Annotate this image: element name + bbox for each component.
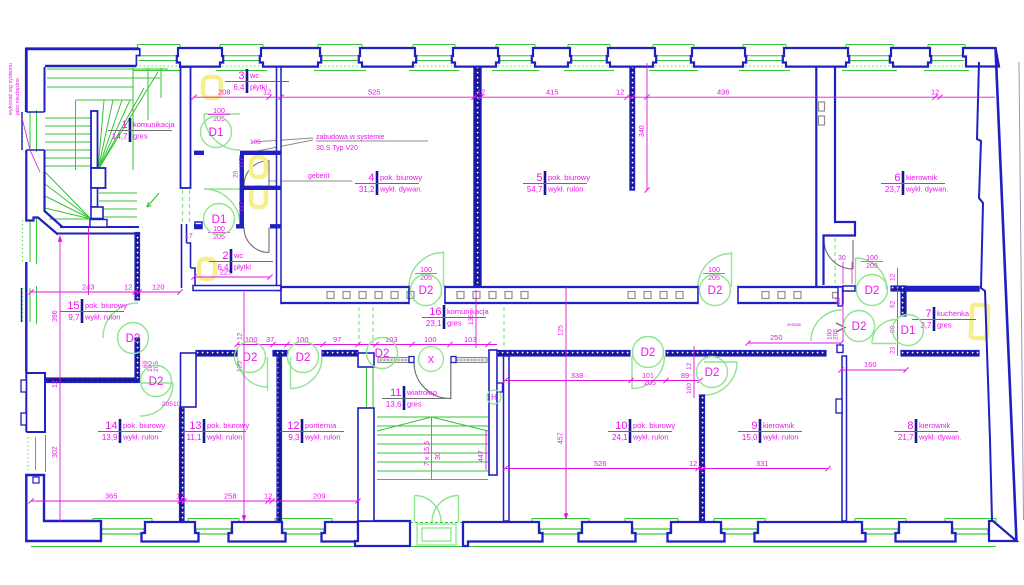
svg-text:portiernia: portiernia: [305, 421, 337, 430]
svg-text:wc: wc: [249, 71, 259, 80]
svg-text:geberit: geberit: [308, 173, 329, 180]
svg-text:12: 12: [52, 380, 59, 388]
svg-text:54,7: 54,7: [527, 185, 543, 194]
svg-text:gres: gres: [937, 321, 952, 330]
svg-text:30: 30: [435, 452, 442, 460]
svg-text:16: 16: [429, 306, 441, 318]
svg-text:396: 396: [52, 310, 59, 322]
svg-text:100: 100: [424, 335, 437, 344]
svg-text:12: 12: [176, 492, 184, 501]
svg-text:11: 11: [390, 387, 401, 399]
svg-text:pok. biurowy: pok. biurowy: [548, 173, 590, 182]
svg-text:gres: gres: [133, 132, 148, 141]
svg-text:kierownik: kierownik: [919, 421, 951, 430]
svg-text:302: 302: [52, 446, 59, 458]
svg-text:D2: D2: [126, 333, 141, 345]
svg-text:D2: D2: [705, 367, 720, 379]
svg-text:13: 13: [835, 297, 842, 305]
svg-text:wykł. rulon: wykł. rulon: [632, 433, 668, 442]
svg-text:pok. biurowy: pok. biurowy: [633, 421, 675, 430]
svg-text:31,2: 31,2: [359, 185, 375, 194]
svg-text:205: 205: [644, 380, 656, 387]
svg-text:gres: gres: [447, 319, 462, 328]
svg-text:20: 20: [233, 170, 240, 178]
svg-text:wykł. rulon: wykł. rulon: [304, 433, 340, 442]
svg-text:D1: D1: [901, 325, 916, 337]
svg-text:D2: D2: [149, 376, 164, 388]
svg-text:103: 103: [385, 335, 398, 344]
svg-text:125: 125: [558, 325, 565, 336]
svg-text:pok. biurowy: pok. biurowy: [123, 421, 165, 430]
svg-text:13,6: 13,6: [386, 400, 402, 409]
svg-text:23,1: 23,1: [426, 319, 442, 328]
svg-text:7: 7: [925, 308, 931, 320]
svg-text:5: 5: [536, 172, 542, 184]
svg-text:pok. biurowy: pok. biurowy: [207, 421, 249, 430]
svg-text:103: 103: [464, 335, 477, 344]
svg-text:12: 12: [264, 492, 272, 501]
svg-text:12: 12: [124, 283, 132, 292]
svg-text:9: 9: [751, 420, 757, 432]
svg-text:7 x 15,5: 7 x 15,5: [424, 441, 431, 466]
svg-text:wc: wc: [233, 251, 243, 260]
svg-text:205: 205: [162, 401, 173, 408]
svg-text:D2: D2: [641, 347, 656, 359]
svg-text:30: 30: [838, 255, 846, 262]
svg-text:526: 526: [594, 459, 607, 468]
svg-text:17: 17: [185, 233, 193, 240]
svg-text:15,0: 15,0: [742, 433, 758, 442]
svg-text:D2: D2: [296, 352, 311, 364]
svg-text:100: 100: [213, 226, 225, 233]
svg-text:12: 12: [931, 88, 939, 97]
svg-text:205: 205: [420, 275, 432, 282]
svg-text:30.S Typ V20: 30.S Typ V20: [316, 145, 358, 152]
svg-text:zestaw: zestaw: [787, 322, 802, 327]
svg-text:23: 23: [890, 346, 897, 354]
svg-text:10: 10: [173, 401, 181, 408]
svg-text:12: 12: [686, 362, 693, 370]
svg-text:365: 365: [105, 492, 118, 501]
svg-text:10: 10: [615, 420, 627, 432]
svg-text:23,7: 23,7: [885, 185, 901, 194]
svg-text:wykł. dywan.: wykł. dywan.: [905, 185, 949, 194]
svg-text:D2: D2: [708, 285, 723, 297]
svg-text:415: 415: [546, 88, 559, 97]
svg-text:100: 100: [708, 267, 720, 274]
svg-text:331: 331: [756, 459, 769, 468]
svg-text:209: 209: [313, 492, 326, 501]
svg-text:457: 457: [558, 432, 565, 444]
svg-text:6,4: 6,4: [233, 83, 245, 92]
svg-text:płytki: płytki: [234, 263, 251, 272]
svg-text:D2: D2: [419, 285, 434, 297]
svg-text:15: 15: [67, 300, 79, 312]
svg-text:89: 89: [681, 371, 689, 380]
svg-text:wykł. rulon: wykł. rulon: [122, 433, 158, 442]
svg-text:D1: D1: [209, 127, 224, 139]
svg-text:D1: D1: [212, 214, 227, 226]
svg-text:wiatrołap: wiatrołap: [406, 388, 437, 397]
svg-text:8: 8: [907, 420, 913, 432]
svg-text:100: 100: [213, 108, 225, 115]
svg-text:21,7: 21,7: [898, 433, 914, 442]
svg-text:12: 12: [237, 332, 244, 340]
svg-text:13: 13: [189, 420, 201, 432]
svg-text:101: 101: [642, 373, 654, 380]
svg-text:120: 120: [152, 283, 165, 292]
svg-text:258: 258: [224, 492, 237, 501]
svg-text:wykł. rulon: wykł. rulon: [84, 313, 120, 322]
svg-text:płytki: płytki: [250, 83, 267, 92]
svg-text:12: 12: [616, 88, 624, 97]
svg-text:2: 2: [222, 250, 228, 262]
svg-text:D2: D2: [375, 348, 390, 360]
svg-text:gres: gres: [407, 400, 422, 409]
svg-text:6,4: 6,4: [217, 263, 229, 272]
svg-text:525: 525: [368, 88, 381, 97]
svg-text:3: 3: [238, 70, 244, 82]
svg-text:62: 62: [890, 300, 897, 308]
svg-text:zabudowa w systemie: zabudowa w systemie: [316, 134, 385, 141]
svg-text:117: 117: [239, 201, 246, 212]
svg-text:4: 4: [368, 172, 374, 184]
svg-text:wykł. dywan.: wykł. dywan.: [379, 185, 423, 194]
svg-text:kuchenka: kuchenka: [937, 309, 970, 318]
svg-text:wykł. rulon: wykł. rulon: [547, 185, 583, 194]
svg-text:X: X: [428, 355, 435, 366]
svg-text:13,9: 13,9: [102, 433, 118, 442]
svg-text:9,3: 9,3: [288, 433, 300, 442]
svg-text:14: 14: [105, 420, 117, 432]
svg-text:14,7: 14,7: [112, 132, 128, 141]
svg-text:9,7: 9,7: [68, 313, 80, 322]
svg-text:wykł. rulon: wykł. rulon: [762, 433, 798, 442]
svg-text:D2: D2: [865, 285, 880, 297]
svg-text:D2: D2: [852, 321, 867, 333]
svg-text:jako niezbędne: jako niezbędne: [15, 78, 21, 116]
svg-text:496: 496: [717, 88, 730, 97]
svg-text:97: 97: [333, 335, 341, 344]
svg-text:447: 447: [478, 450, 485, 462]
svg-text:12: 12: [890, 273, 897, 281]
svg-text:205: 205: [833, 329, 840, 340]
svg-text:37: 37: [266, 335, 274, 344]
svg-text:208: 208: [218, 88, 231, 97]
svg-text:12: 12: [477, 88, 485, 97]
svg-text:100: 100: [686, 383, 693, 394]
svg-text:12: 12: [689, 459, 697, 468]
svg-text:11,1: 11,1: [187, 433, 203, 442]
svg-text:100: 100: [420, 267, 432, 274]
svg-text:wykł. rulon: wykł. rulon: [206, 433, 242, 442]
svg-text:1: 1: [121, 119, 127, 131]
svg-text:100: 100: [866, 255, 878, 262]
svg-text:340: 340: [639, 125, 646, 137]
svg-text:komunikacja: komunikacja: [133, 120, 176, 129]
svg-text:338: 338: [571, 371, 584, 380]
svg-text:6: 6: [894, 172, 900, 184]
svg-text:wykł. dywan.: wykł. dywan.: [918, 433, 962, 442]
svg-text:kierownik: kierownik: [763, 421, 795, 430]
svg-text:24,1: 24,1: [612, 433, 628, 442]
svg-text:250: 250: [770, 333, 783, 342]
svg-text:205: 205: [866, 263, 878, 270]
svg-text:12: 12: [287, 420, 299, 432]
svg-text:D2: D2: [243, 352, 258, 364]
svg-text:pok. biurowy: pok. biurowy: [85, 301, 127, 310]
svg-text:komunikacja: komunikacja: [447, 307, 490, 316]
svg-text:wykonać wg systemu: wykonać wg systemu: [8, 63, 14, 116]
svg-text:105: 105: [250, 139, 261, 146]
svg-text:pok. biurowy: pok. biurowy: [380, 173, 422, 182]
svg-text:160: 160: [864, 360, 877, 369]
svg-text:kierownik: kierownik: [906, 173, 938, 182]
svg-text:H: H: [491, 393, 497, 402]
svg-text:117: 117: [239, 157, 246, 168]
